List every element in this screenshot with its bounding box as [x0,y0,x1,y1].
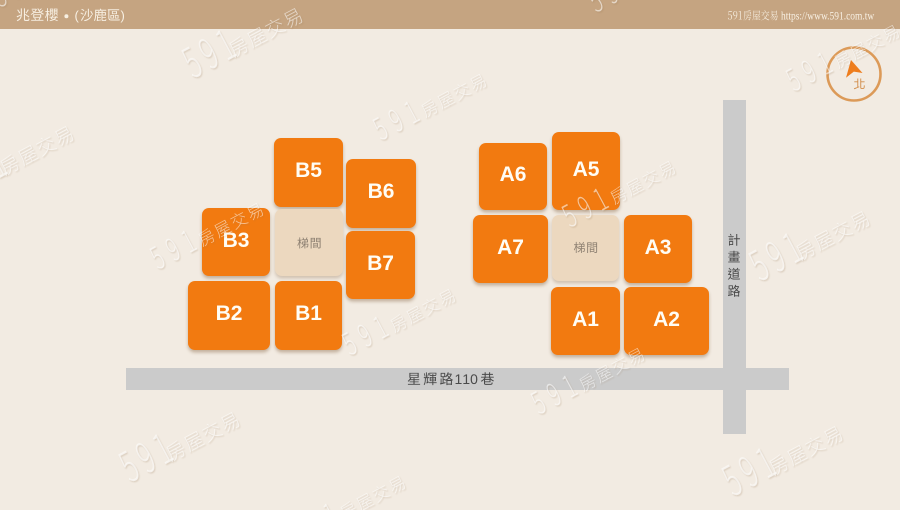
svg-text:): ) [121,8,125,23]
svg-text:(: ( [75,8,80,23]
svg-text:https://www.591.com.tw: https://www.591.com.tw [781,10,874,23]
